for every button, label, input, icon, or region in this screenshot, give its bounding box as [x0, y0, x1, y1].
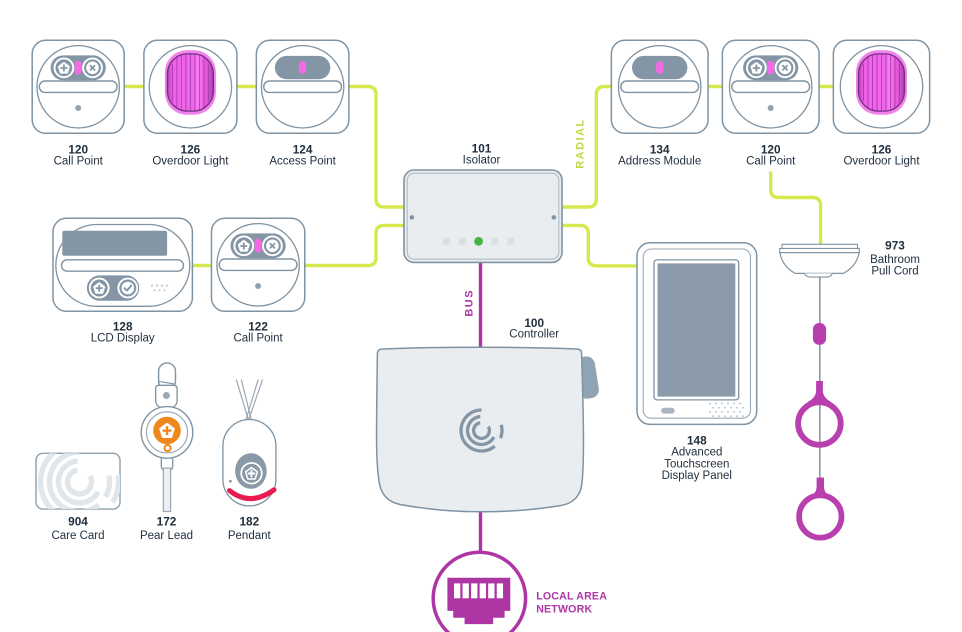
svg-text:Pear Lead: Pear Lead	[140, 530, 193, 542]
svg-text:Call Point: Call Point	[54, 155, 104, 167]
svg-text:124: 124	[293, 142, 313, 156]
svg-text:973: 973	[885, 239, 905, 253]
svg-text:128: 128	[113, 319, 133, 333]
svg-text:Advanced: Advanced	[671, 447, 722, 459]
svg-text:148: 148	[687, 434, 707, 448]
svg-text:Pull Cord: Pull Cord	[871, 266, 918, 278]
svg-text:Call Point: Call Point	[746, 155, 796, 167]
svg-text:134: 134	[650, 142, 670, 156]
svg-text:LOCAL AREA: LOCAL AREA	[536, 591, 607, 603]
svg-text:172: 172	[157, 515, 177, 529]
svg-text:Overdoor Light: Overdoor Light	[843, 155, 920, 167]
svg-text:NETWORK: NETWORK	[536, 603, 592, 615]
svg-text:904: 904	[68, 515, 88, 529]
svg-text:126: 126	[181, 142, 201, 156]
svg-text:120: 120	[761, 142, 781, 156]
svg-text:LCD Display: LCD Display	[91, 332, 155, 344]
svg-text:182: 182	[239, 515, 259, 529]
svg-text:Call Point: Call Point	[233, 332, 283, 344]
svg-text:101: 101	[472, 141, 492, 155]
svg-text:Care Card: Care Card	[51, 530, 104, 542]
svg-text:Address Module: Address Module	[618, 155, 701, 167]
svg-text:Overdoor Light: Overdoor Light	[152, 155, 229, 167]
svg-text:Display Panel: Display Panel	[662, 470, 732, 482]
svg-text:Pendant: Pendant	[228, 530, 272, 542]
svg-text:Touchscreen: Touchscreen	[664, 458, 729, 470]
svg-text:Isolator: Isolator	[463, 154, 501, 166]
svg-text:Controller: Controller	[509, 329, 559, 341]
svg-text:RADIAL: RADIAL	[575, 118, 587, 169]
svg-text:126: 126	[872, 142, 892, 156]
svg-text:Access Point: Access Point	[269, 155, 336, 167]
svg-text:120: 120	[68, 142, 88, 156]
svg-text:Bathroom: Bathroom	[870, 254, 920, 266]
svg-text:BUS: BUS	[464, 289, 476, 317]
svg-text:122: 122	[248, 319, 268, 333]
